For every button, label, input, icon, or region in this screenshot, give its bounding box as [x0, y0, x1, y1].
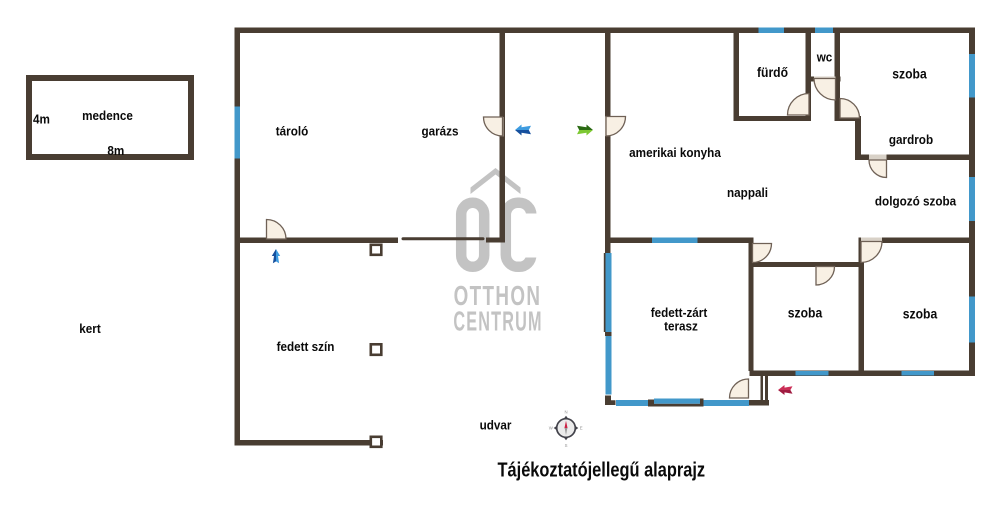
- svg-text:Tájékoztatójellegű alaprajz: Tájékoztatójellegű alaprajz: [498, 458, 706, 481]
- svg-text:fürdő: fürdő: [757, 64, 788, 80]
- svg-text:CENTRUM: CENTRUM: [453, 306, 542, 336]
- svg-text:4m: 4m: [33, 112, 50, 127]
- svg-text:gardrob: gardrob: [889, 132, 934, 147]
- svg-text:udvar: udvar: [480, 418, 512, 433]
- svg-text:kert: kert: [79, 321, 100, 336]
- svg-text:8m: 8m: [107, 143, 124, 158]
- svg-text:medence: medence: [82, 108, 133, 123]
- svg-text:E: E: [580, 426, 583, 431]
- svg-text:szoba: szoba: [788, 305, 823, 321]
- svg-text:szoba: szoba: [903, 306, 938, 322]
- svg-text:wc: wc: [816, 50, 833, 65]
- svg-text:dolgozó szoba: dolgozó szoba: [875, 194, 956, 209]
- svg-text:nappali: nappali: [727, 185, 768, 200]
- svg-text:S: S: [565, 443, 568, 448]
- svg-text:garázs: garázs: [421, 124, 458, 139]
- svg-text:N: N: [564, 410, 567, 415]
- svg-text:terasz: terasz: [664, 319, 698, 334]
- svg-text:fedett szín: fedett szín: [277, 339, 335, 354]
- svg-text:tároló: tároló: [276, 124, 309, 139]
- svg-text:amerikai konyha: amerikai konyha: [629, 145, 721, 160]
- svg-text:szoba: szoba: [892, 66, 927, 82]
